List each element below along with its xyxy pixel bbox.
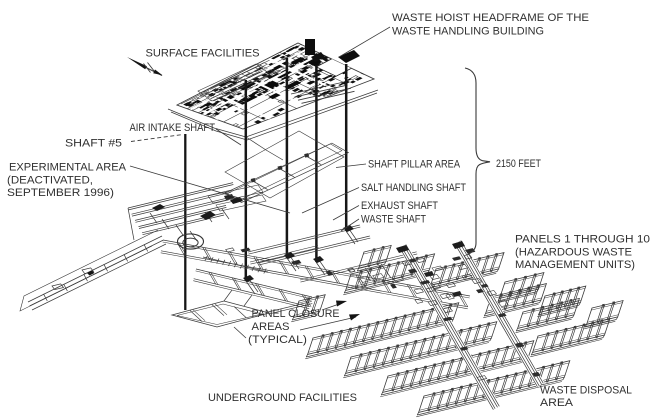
svg-text:2150 FEET: 2150 FEET (496, 158, 541, 170)
svg-text:PANEL CLOSURE: PANEL CLOSURE (252, 308, 340, 320)
svg-text:AREAS: AREAS (252, 321, 290, 333)
svg-text:WASTE SHAFT: WASTE SHAFT (361, 214, 426, 226)
svg-text:(TYPICAL): (TYPICAL) (248, 334, 307, 346)
svg-text:EXPERIMENTAL AREA: EXPERIMENTAL AREA (9, 162, 127, 174)
svg-text:WASTE HANDLING BUILDING: WASTE HANDLING BUILDING (392, 26, 544, 38)
svg-text:WASTE HOIST HEADFRAME OF THE: WASTE HOIST HEADFRAME OF THE (392, 12, 589, 24)
svg-text:SALT HANDLING SHAFT: SALT HANDLING SHAFT (361, 182, 466, 194)
svg-text:SHAFT PILLAR AREA: SHAFT PILLAR AREA (368, 159, 460, 171)
svg-text:AIR INTAKE SHAFT: AIR INTAKE SHAFT (130, 122, 216, 134)
svg-text:EXHAUST SHAFT: EXHAUST SHAFT (361, 200, 438, 212)
svg-text:SEPTEMBER 1996): SEPTEMBER 1996) (7, 187, 114, 199)
svg-text:WASTE DISPOSAL: WASTE DISPOSAL (540, 385, 632, 397)
svg-text:SHAFT #5: SHAFT #5 (65, 138, 122, 150)
svg-text:AREA: AREA (540, 397, 574, 409)
svg-text:(DEACTIVATED,: (DEACTIVATED, (7, 175, 93, 187)
svg-text:SURFACE FACILITIES: SURFACE FACILITIES (146, 48, 260, 60)
svg-text:(HAZARDOUS WASTE: (HAZARDOUS WASTE (515, 247, 632, 259)
svg-text:PANELS 1 THROUGH 10: PANELS 1 THROUGH 10 (515, 234, 650, 246)
svg-text:MANAGEMENT UNITS): MANAGEMENT UNITS) (515, 259, 635, 271)
svg-text:UNDERGROUND FACILITIES: UNDERGROUND FACILITIES (208, 392, 357, 404)
